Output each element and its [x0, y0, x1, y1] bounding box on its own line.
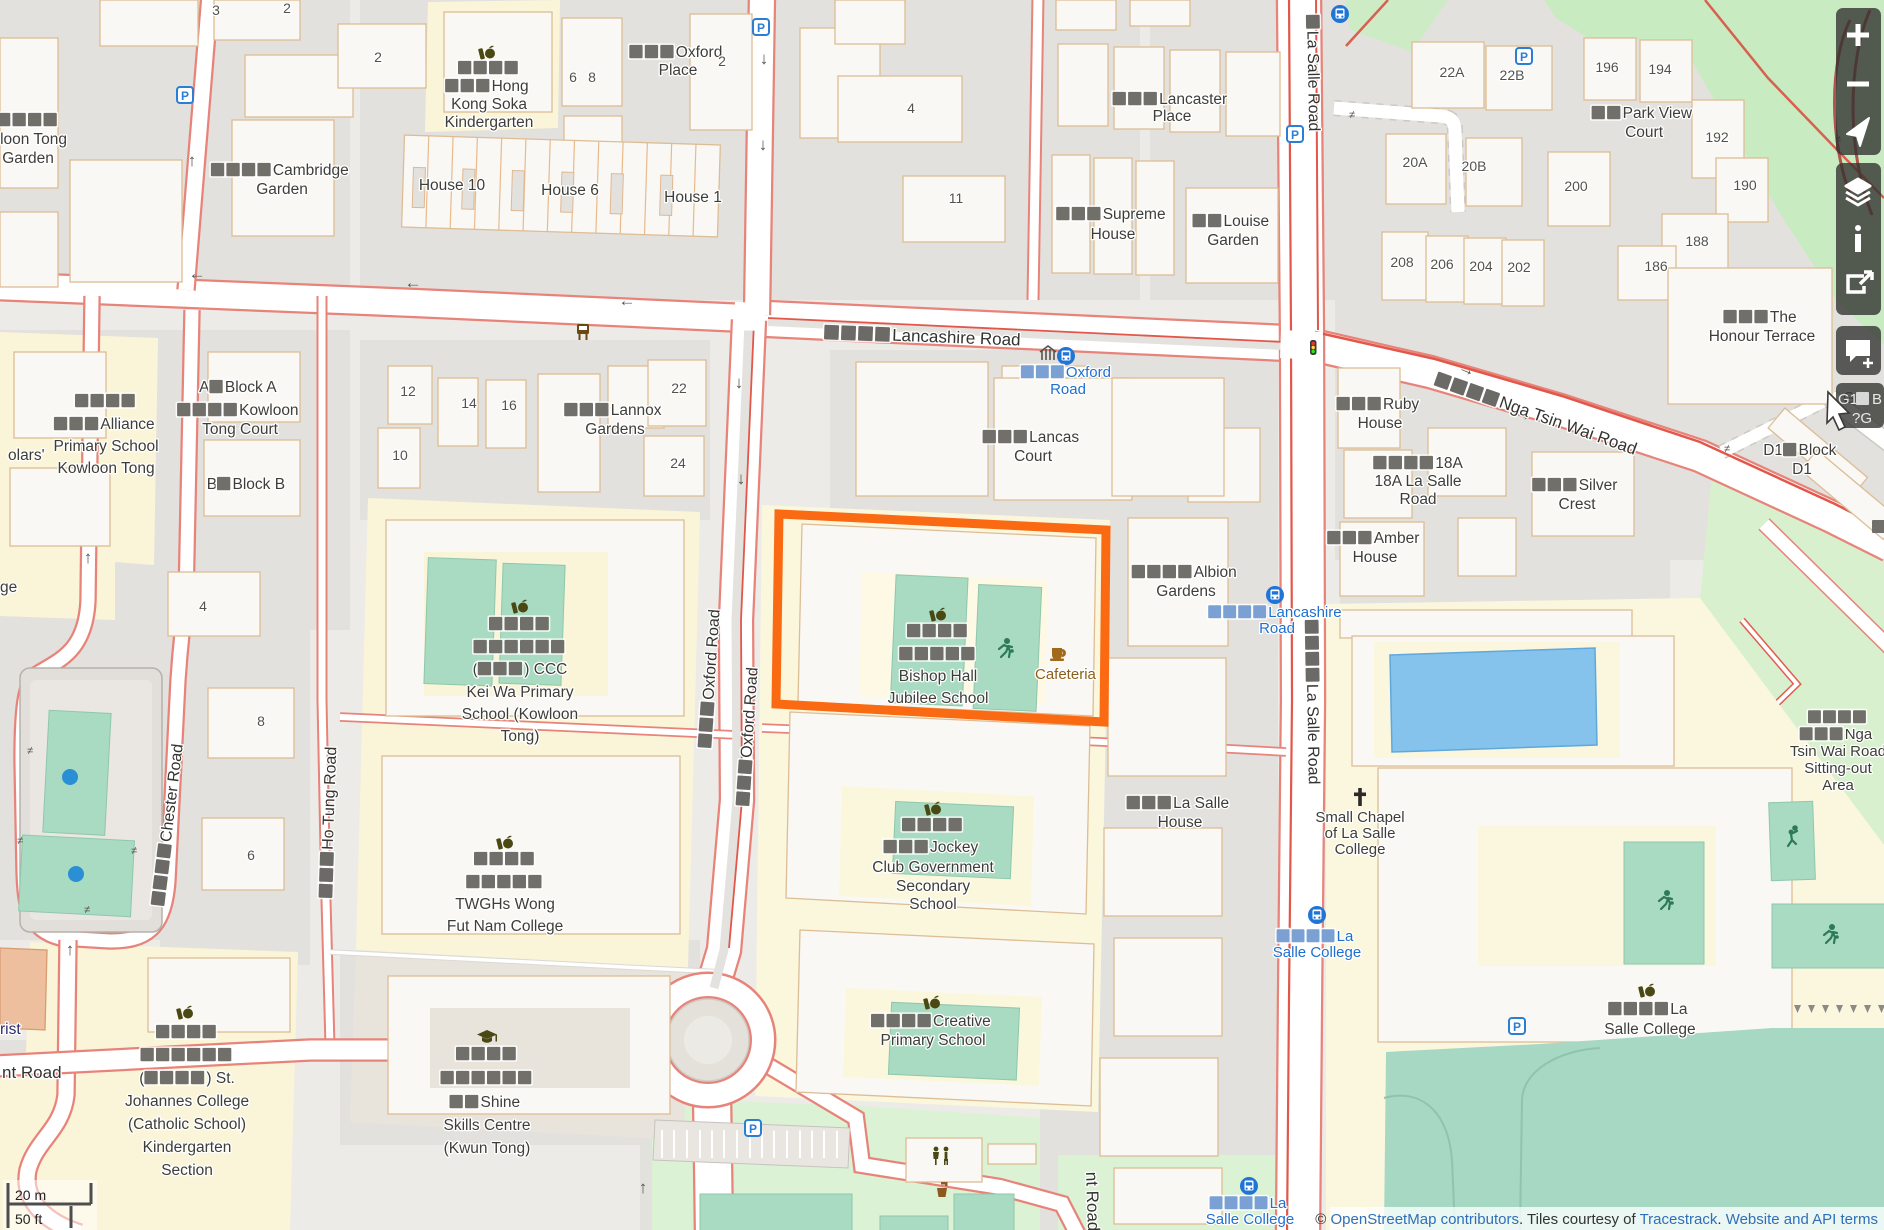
svg-text:Salle College: Salle College	[1206, 1211, 1294, 1228]
svg-text:18A: 18A	[1435, 455, 1463, 472]
svg-text:La: La	[1337, 928, 1354, 945]
svg-text:Creative: Creative	[933, 1013, 991, 1030]
svg-text:olars': olars'	[8, 447, 45, 464]
svg-text:16: 16	[501, 397, 517, 413]
svg-text:4: 4	[199, 598, 207, 614]
svg-text:↓: ↓	[759, 135, 768, 154]
svg-text:Nga: Nga	[1845, 726, 1873, 743]
svg-text:(Catholic School): (Catholic School)	[128, 1116, 246, 1133]
svg-text:3: 3	[212, 2, 220, 18]
svg-text:Amber: Amber	[1374, 530, 1420, 547]
svg-text:↑: ↑	[188, 151, 197, 170]
svg-text:196: 196	[1595, 59, 1619, 75]
svg-text:4: 4	[907, 100, 915, 116]
svg-text:Kindergarten: Kindergarten	[143, 1139, 232, 1156]
svg-text:50 ft: 50 ft	[15, 1211, 42, 1227]
svg-text:6: 6	[247, 847, 255, 863]
svg-text:2: 2	[374, 49, 382, 65]
svg-text:Block B: Block B	[233, 476, 286, 493]
svg-text:Sitting-out: Sitting-out	[1804, 760, 1872, 777]
svg-text:Alliance: Alliance	[100, 416, 154, 433]
svg-text:House: House	[1353, 549, 1398, 566]
svg-text:P: P	[757, 21, 765, 35]
svg-text:?G: ?G	[1852, 410, 1872, 427]
svg-text:Albion: Albion	[1194, 564, 1237, 581]
svg-text:P: P	[181, 89, 189, 103]
svg-text:Block A: Block A	[225, 379, 277, 396]
svg-text:≠: ≠	[84, 904, 90, 916]
svg-text:6: 6	[569, 69, 577, 85]
svg-text:Gardens: Gardens	[585, 421, 645, 438]
svg-text:≠: ≠	[17, 835, 23, 847]
svg-text:D1: D1	[1763, 442, 1783, 459]
svg-text:Garden: Garden	[2, 150, 54, 167]
svg-text:20 m: 20 m	[15, 1187, 46, 1203]
svg-text:Honour Terrace: Honour Terrace	[1709, 328, 1816, 345]
svg-text:Garden: Garden	[1207, 232, 1259, 249]
svg-text:12: 12	[400, 383, 416, 399]
svg-text:206: 206	[1430, 256, 1454, 272]
svg-text:Park View: Park View	[1623, 105, 1693, 122]
svg-text:Primary School: Primary School	[881, 1032, 986, 1049]
svg-text:La Salle Road: La Salle Road	[1303, 31, 1322, 132]
svg-text:Jubilee School: Jubilee School	[888, 690, 989, 707]
svg-text:8: 8	[588, 69, 596, 85]
svg-text:Secondary: Secondary	[896, 878, 970, 895]
svg-text:←: ←	[619, 291, 636, 310]
svg-text:←: ←	[405, 273, 422, 292]
svg-text:186: 186	[1644, 258, 1668, 274]
svg-text:Johannes College: Johannes College	[125, 1093, 249, 1110]
svg-text:B: B	[1872, 391, 1882, 408]
svg-text:Silver: Silver	[1579, 477, 1618, 494]
svg-text:House 1: House 1	[664, 189, 722, 206]
svg-text:Louise: Louise	[1224, 213, 1270, 230]
svg-text:Fut Nam College: Fut Nam College	[447, 918, 563, 935]
svg-text:of La Salle: of La Salle	[1325, 825, 1396, 842]
svg-text:Salle College: Salle College	[1604, 1021, 1695, 1038]
svg-text:188: 188	[1685, 233, 1709, 249]
svg-text:↓: ↓	[760, 49, 769, 68]
svg-text:10: 10	[392, 447, 408, 463]
svg-text:nt Road: nt Road	[1082, 1171, 1103, 1230]
svg-text:rist: rist	[0, 1021, 21, 1038]
svg-text:P: P	[1513, 1020, 1521, 1034]
svg-text:House: House	[1091, 226, 1136, 243]
svg-text:20A: 20A	[1403, 154, 1429, 170]
svg-text:Primary School: Primary School	[54, 438, 159, 455]
svg-text:Tong): Tong)	[501, 728, 540, 745]
svg-text:24: 24	[670, 455, 686, 471]
svg-text:Kowloon: Kowloon	[239, 402, 298, 419]
svg-text:22: 22	[671, 380, 687, 396]
svg-text:←: ←	[189, 264, 206, 283]
svg-text:Oxford: Oxford	[676, 44, 723, 61]
svg-text:Tsin Wai Road: Tsin Wai Road	[1790, 743, 1884, 760]
svg-text:© OpenStreetMap contributors.: © OpenStreetMap contributors. Tiles cour…	[1315, 1211, 1878, 1228]
svg-text:Jockey: Jockey	[930, 839, 978, 856]
svg-text:18A La Salle: 18A La Salle	[1375, 473, 1462, 490]
svg-text:↑: ↑	[639, 1178, 648, 1197]
svg-text:2: 2	[718, 53, 726, 69]
svg-text:Lannox: Lannox	[611, 402, 662, 419]
svg-text:Lancaster: Lancaster	[1159, 91, 1227, 108]
svg-text:Road: Road	[1259, 620, 1295, 637]
svg-text:Supreme: Supreme	[1103, 206, 1166, 223]
svg-text:(Kwun Tong): (Kwun Tong)	[444, 1140, 531, 1157]
svg-text:202: 202	[1507, 259, 1531, 275]
svg-text:House 10: House 10	[419, 177, 486, 194]
svg-text:Road: Road	[1400, 491, 1437, 508]
svg-text:P: P	[1520, 50, 1528, 64]
svg-text:Tong Court: Tong Court	[202, 421, 279, 438]
svg-text:↑: ↑	[66, 940, 75, 959]
svg-text:Kindergarten: Kindergarten	[445, 114, 534, 131]
svg-text:Court: Court	[1014, 448, 1053, 465]
svg-text:Crest: Crest	[1559, 496, 1597, 513]
svg-text:) CCC: ) CCC	[524, 661, 567, 678]
svg-text:La: La	[1270, 1195, 1287, 1212]
svg-text:Bishop Hall: Bishop Hall	[899, 668, 977, 685]
svg-text:Small Chapel: Small Chapel	[1315, 809, 1404, 826]
svg-text:Place: Place	[659, 62, 698, 79]
svg-text:Road: Road	[1050, 381, 1086, 398]
svg-text:Garden: Garden	[256, 181, 308, 198]
svg-text:) St.: ) St.	[206, 1070, 234, 1087]
svg-text:Salle College: Salle College	[1273, 944, 1361, 961]
svg-text:14: 14	[461, 395, 477, 411]
svg-text:Section: Section	[161, 1162, 213, 1179]
svg-text:Kowloon Tong: Kowloon Tong	[58, 460, 155, 477]
svg-text:School: School	[909, 896, 956, 913]
svg-text:TWGHs Wong: TWGHs Wong	[455, 896, 555, 913]
svg-text:Shine: Shine	[481, 1094, 521, 1111]
svg-text:2: 2	[283, 0, 291, 16]
svg-text:Area: Area	[1822, 777, 1854, 794]
svg-text:192: 192	[1705, 129, 1729, 145]
svg-text:190: 190	[1733, 177, 1757, 193]
svg-text:School (Kowloon: School (Kowloon	[462, 706, 578, 723]
svg-text:D1: D1	[1792, 461, 1812, 478]
svg-text:Oxford: Oxford	[1066, 364, 1111, 381]
svg-text:Club Government: Club Government	[872, 859, 994, 876]
svg-text:House 6: House 6	[541, 182, 599, 199]
svg-text:208: 208	[1390, 254, 1414, 270]
svg-text:House: House	[1358, 415, 1403, 432]
svg-text:Ruby: Ruby	[1383, 396, 1419, 413]
svg-text:≠: ≠	[27, 745, 33, 757]
svg-text:20B: 20B	[1462, 158, 1487, 174]
svg-text:8: 8	[257, 713, 265, 729]
svg-text:Lancashire: Lancashire	[1268, 604, 1341, 621]
svg-text:La: La	[1670, 1001, 1688, 1018]
svg-text:Gardens: Gardens	[1156, 583, 1216, 600]
svg-text:204: 204	[1469, 258, 1493, 274]
svg-text:Lancas: Lancas	[1029, 429, 1079, 446]
svg-text:B: B	[207, 476, 217, 493]
svg-text:Kong Soka: Kong Soka	[451, 96, 527, 113]
svg-text:≠: ≠	[1724, 443, 1730, 455]
svg-text:194: 194	[1648, 61, 1672, 77]
svg-text:11: 11	[949, 190, 964, 206]
svg-text:200: 200	[1564, 178, 1588, 194]
svg-text:ge: ge	[0, 579, 17, 596]
svg-text:Skills Centre: Skills Centre	[444, 1117, 531, 1134]
svg-text:P: P	[1291, 128, 1299, 142]
svg-text:House: House	[1158, 814, 1203, 831]
svg-text:22A: 22A	[1440, 64, 1466, 80]
svg-text:Kei Wa Primary: Kei Wa Primary	[467, 684, 574, 701]
svg-text:Hong: Hong	[492, 78, 529, 95]
svg-text:≠: ≠	[131, 845, 137, 857]
svg-text:Place: Place	[1153, 108, 1192, 125]
svg-text:Cambridge: Cambridge	[273, 162, 349, 179]
svg-text:22B: 22B	[1500, 67, 1525, 83]
svg-text:≠: ≠	[1349, 109, 1355, 121]
svg-text:↓: ↓	[737, 469, 746, 488]
svg-text:The: The	[1770, 309, 1797, 326]
svg-text:nt Road: nt Road	[2, 1063, 62, 1082]
svg-text:↓: ↓	[735, 373, 744, 392]
svg-text:wloon Tong: wloon Tong	[0, 131, 67, 148]
svg-text:College: College	[1335, 841, 1386, 858]
svg-text:La Salle Road: La Salle Road	[1303, 684, 1322, 785]
svg-text:Block: Block	[1799, 442, 1837, 459]
svg-text:Court: Court	[1625, 124, 1664, 141]
svg-text:Cafeteria: Cafeteria	[1035, 666, 1097, 683]
svg-text:Ho Tung Road: Ho Tung Road	[320, 746, 341, 850]
svg-text:↑: ↑	[84, 548, 93, 567]
svg-text:La Salle: La Salle	[1173, 795, 1229, 812]
svg-text:P: P	[749, 1122, 757, 1136]
